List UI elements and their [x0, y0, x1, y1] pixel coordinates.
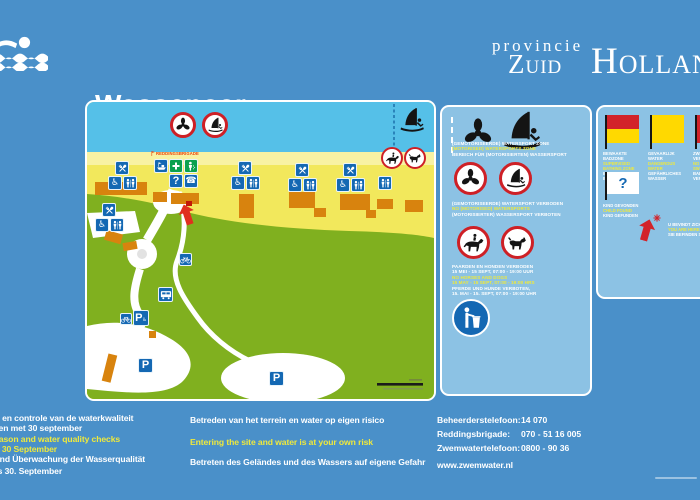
telephone-icon: ☎ [184, 174, 198, 188]
question-mark-icon: ? [618, 175, 627, 192]
no-motorboats-sign [454, 162, 487, 195]
no-windsurfing-sign [499, 162, 532, 195]
you-are-here-label: U BEVINDT ZICH HIER YOU ARE HERE SIE BEF… [668, 222, 700, 237]
no-motorboats-sign [170, 112, 196, 138]
toilets-icon [110, 218, 124, 232]
website-link: www.zwemwater.nl [437, 460, 513, 470]
watersport-rules-panel: (GEMOTORISEERDE) WATERSPORT ZONE (MOTORI… [440, 105, 592, 396]
restaurant-icon [115, 161, 129, 175]
footer-contacts: Beheerderstelefoon:14 070 Reddingsbrigad… [437, 415, 637, 475]
no-windsurfing-sign [202, 112, 228, 138]
wheelchair-access-icon: ♿ [231, 176, 245, 190]
marker-burst-icon [653, 214, 661, 222]
wheelchair-access-icon: ♿ [288, 178, 302, 192]
dangerous-water-flag [650, 115, 684, 149]
wheelchair-access-icon: ♿ [95, 218, 109, 232]
swimmer-icon [0, 32, 48, 72]
no-swimming-flag [695, 115, 700, 149]
wheelchair-access-icon: ♿ [108, 176, 122, 190]
restaurant-icon [238, 161, 252, 175]
no-swimming-label: ZWEMMEN VERBODEN NO SWIMMING BADEN VERBO… [693, 151, 700, 181]
toilets-icon [351, 178, 365, 192]
lifeguard-station-label: REDDINGSBRIGADE [151, 151, 199, 156]
horses-dogs-text: PAARDEN EN HONDEN VERBODEN 15 MEI - 15 S… [452, 264, 536, 296]
zone-text: (GEMOTORISEERDE) WATERSPORT ZONE (MOTORI… [452, 141, 567, 157]
no-dogs-sign [404, 147, 426, 169]
wheelchair-access-icon: ♿ [336, 178, 350, 192]
contact-row: Zwemwatertelefoon:0800 - 90 36 [437, 443, 569, 453]
you-are-here-marker [186, 201, 192, 206]
child-found-label: KIND GEVONDEN CHILD FOUND KIND GEFUNDEN [603, 203, 638, 218]
windsurfing-zone-icon [398, 107, 426, 135]
bus-stop-icon [158, 287, 173, 302]
parking-icon: P [269, 371, 284, 386]
beach-map: ♿ REDDINGSBRIGADE ? ☎ ♿ ♿ ♿ ♿ [85, 100, 436, 401]
toilets-icon [378, 176, 392, 190]
lifeboat-icon [154, 159, 168, 173]
first-aid-icon [169, 159, 183, 173]
contact-row: Reddingsbrigade:070 - 51 16 005 [437, 429, 581, 439]
restaurant-icon [343, 163, 357, 177]
disabled-parking-icon: P♿ [133, 310, 149, 326]
province-word-holland: Holland [591, 40, 700, 83]
supervised-zone-flag [605, 115, 639, 149]
footer-risk-text: Betreden van het terrein en water op eig… [190, 415, 440, 475]
toilets-icon [303, 178, 317, 192]
sea-area [87, 102, 434, 152]
contact-row: Beheerderstelefoon:14 070 [437, 415, 547, 425]
map-terrain [87, 102, 434, 399]
restaurant-icon [295, 163, 309, 177]
no-horses-sign [381, 147, 403, 169]
bicycle-parking-icon [120, 313, 132, 325]
bicycle-icon [179, 253, 192, 266]
child-found-flag: ? [605, 172, 639, 200]
toilets-icon [123, 176, 137, 190]
use-trash-bin-sign [452, 299, 490, 337]
toilets-icon [246, 176, 260, 190]
province-word-zuid: Zuid [508, 49, 562, 80]
prohibited-text: (GEMOTORISEERDE) WATERSPORT VERBODEN NO … [452, 201, 563, 217]
flag-legend-panel: BEWAAKTE BADZONE SUPERVISED BATHING ZONE… [596, 105, 700, 299]
no-dogs-sign [501, 226, 534, 259]
dangerous-water-label: GEVAARLIJK WATER DANGEROUS WATER GEFÄHRL… [648, 151, 681, 181]
lost-child-point-icon [184, 159, 198, 173]
information-icon: ? [169, 174, 183, 188]
restaurant-icon [102, 203, 116, 217]
fine-print-line [655, 477, 697, 479]
parking-icon: P [138, 358, 153, 373]
no-horses-sign [457, 226, 490, 259]
